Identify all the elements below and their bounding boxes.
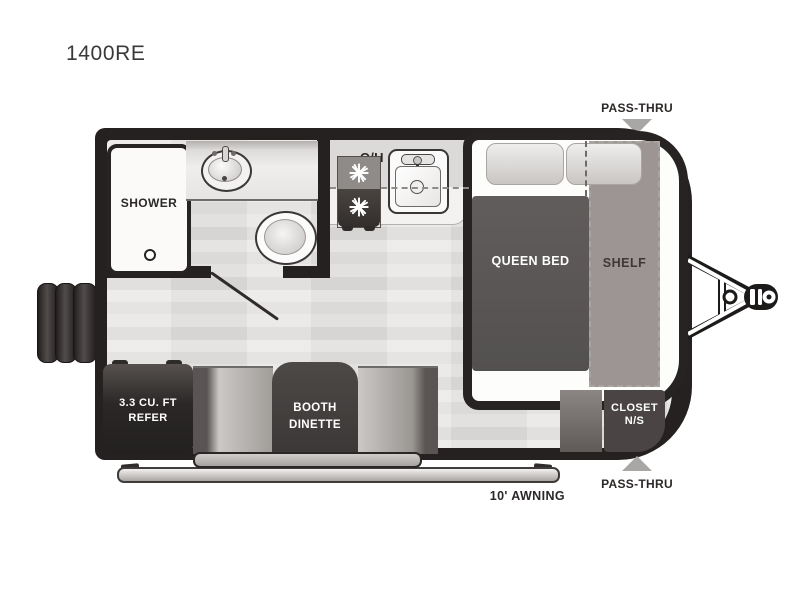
faucet-knob-icon [212, 151, 217, 156]
dinette-table: BOOTH DINETTE [272, 362, 358, 452]
shelf-label: SHELF [589, 256, 660, 270]
queen-bed-label: QUEEN BED [472, 254, 589, 268]
refrigerator: 3.3 CU. FT REFER [103, 364, 193, 454]
bathroom-faucet-icon [222, 146, 229, 162]
kitchen-sink-icon [388, 149, 449, 214]
bathroom-wall [317, 140, 330, 278]
shower-label: SHOWER [111, 196, 187, 210]
dinette-bench-left [193, 366, 273, 454]
shower: SHOWER [107, 144, 191, 275]
pass-thru-bottom-arrow-icon [622, 456, 652, 471]
dinette-bench-right [358, 366, 438, 454]
stove-handle [364, 226, 375, 231]
faucet-knob-icon [231, 151, 236, 156]
overhead-cabinet-dashed-line [330, 187, 469, 189]
refrigerator-label: 3.3 CU. FT REFER [103, 364, 193, 426]
pillow [486, 143, 564, 185]
bathroom-wall [283, 266, 330, 278]
tow-hitch-icon [684, 248, 784, 346]
sink-drain-icon [222, 176, 227, 181]
stove-icon [337, 156, 381, 228]
stove-handle [342, 226, 353, 231]
awning-label: 10' AWNING [470, 489, 565, 503]
window-rail [193, 452, 422, 468]
toilet-seat [264, 219, 306, 255]
stove-burner-icon [348, 196, 370, 218]
pass-thru-top-label: PASS-THRU [592, 101, 682, 115]
awning-rail [117, 467, 560, 483]
queen-bed: QUEEN BED [472, 196, 589, 371]
bedside-storage [560, 390, 602, 452]
dinette-label: BOOTH DINETTE [272, 362, 358, 434]
closet-label: CLOSET N/S [604, 390, 665, 428]
page-title: 1400RE [66, 42, 146, 66]
floorplan-canvas: 1400RE PASS-THRU SHOWER [0, 0, 800, 600]
pillow [566, 143, 642, 185]
entry-step [73, 283, 97, 363]
pass-thru-bottom-label: PASS-THRU [592, 477, 682, 491]
closet: CLOSET N/S [604, 390, 665, 452]
stove-burner-icon [348, 162, 370, 184]
bed-shelf-divider [585, 141, 587, 196]
shower-drain-icon [144, 249, 156, 261]
